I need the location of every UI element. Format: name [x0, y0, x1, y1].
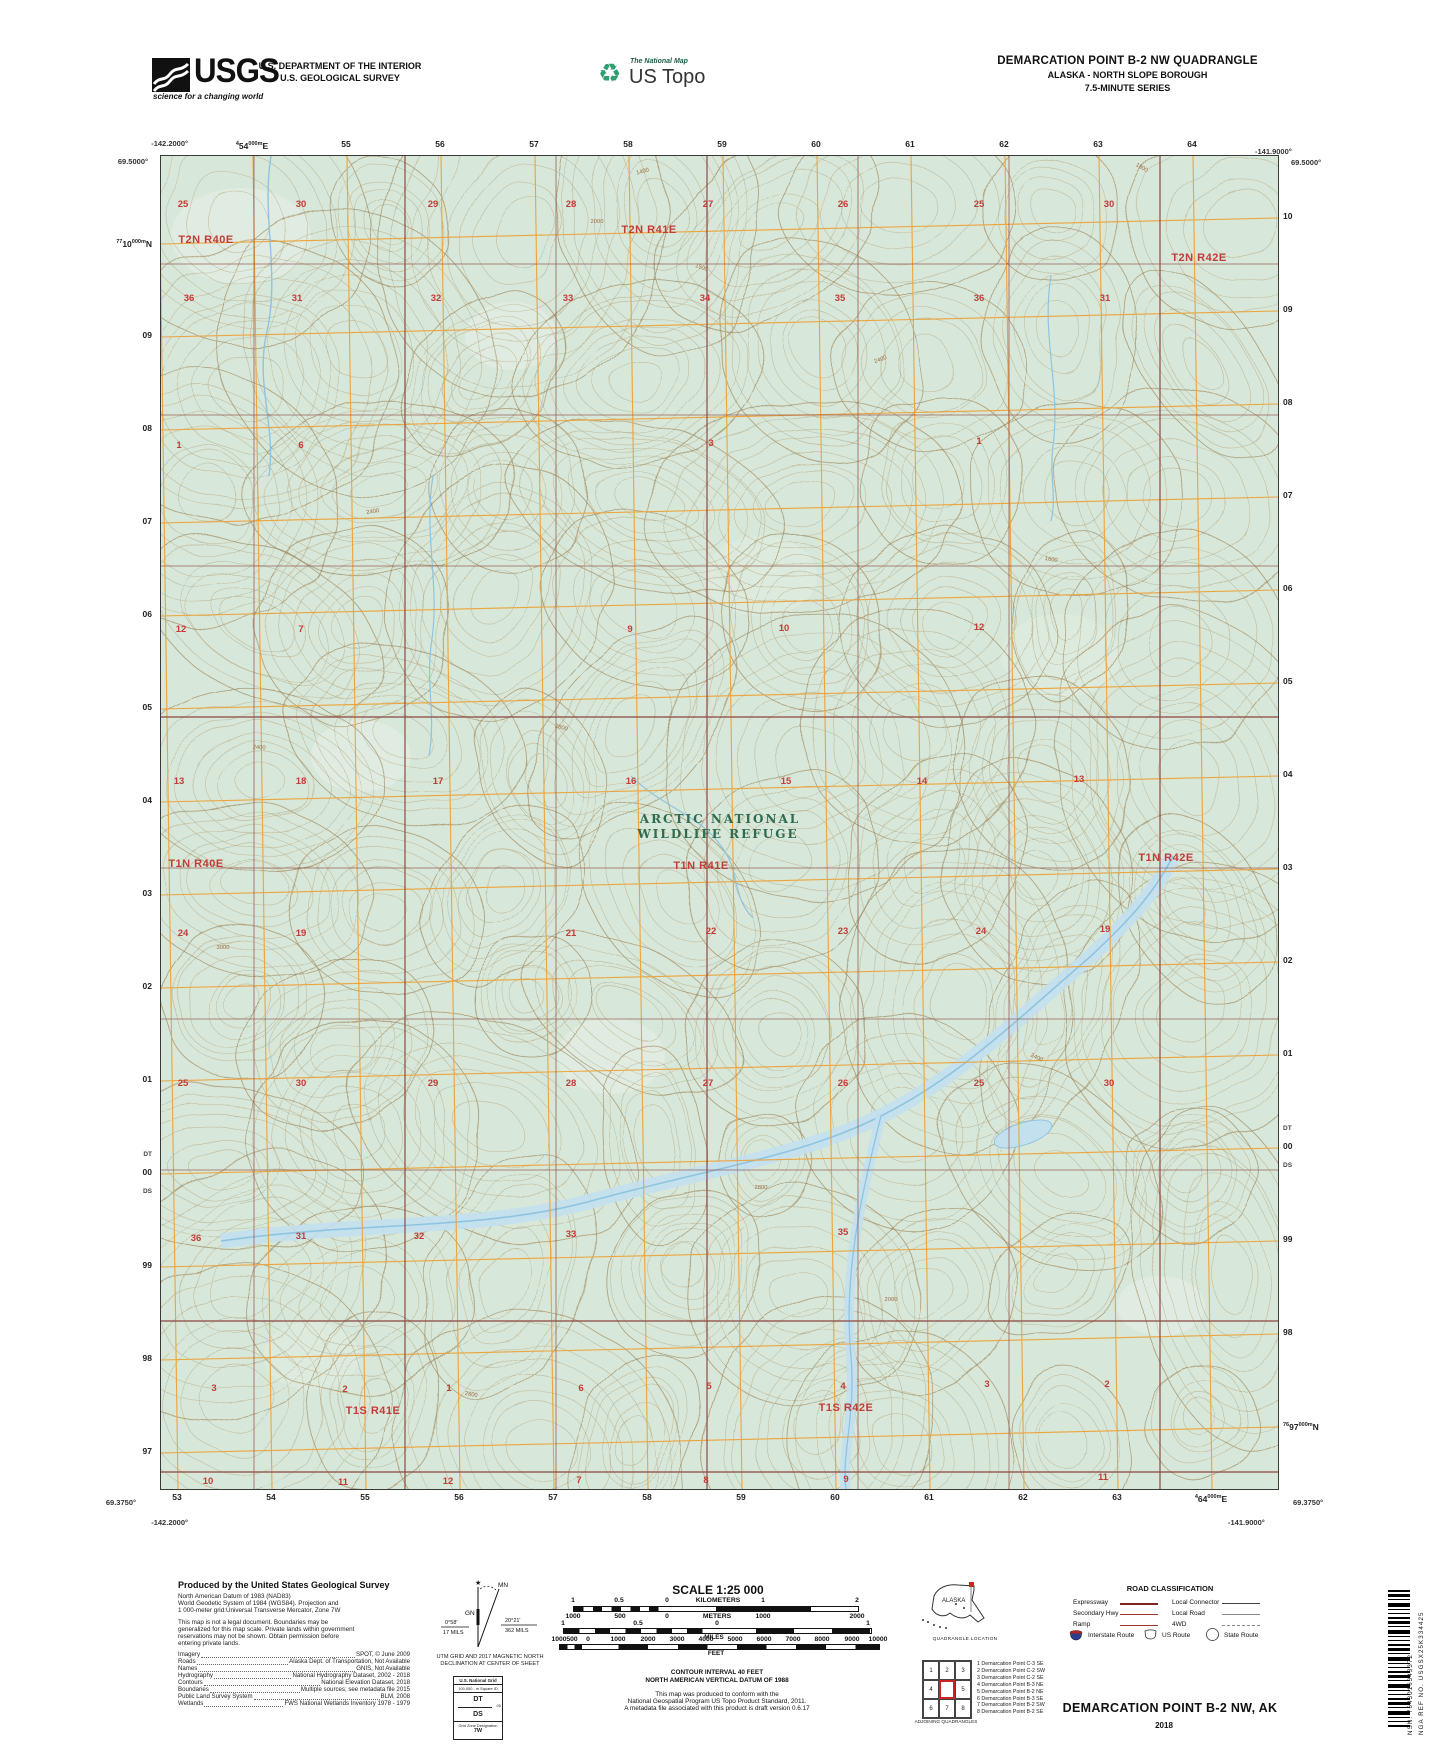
section-number: 28: [566, 199, 577, 210]
section-number: 30: [296, 1078, 307, 1089]
grid-easting-top: 59: [717, 140, 726, 149]
quad-name: DEMARCATION POINT B-2 NW QUADRANGLE: [960, 55, 1295, 67]
adjoining-quad-name: 4 Demarcation Point B-3 NE: [977, 1682, 1107, 1689]
legal-note: This map is not a legal document. Bounda…: [178, 1619, 410, 1648]
adjoining-quad-cell: 3: [955, 1661, 971, 1680]
declination-caption: UTM GRID AND 2017 MAGNETIC NORTH DECLINA…: [425, 1654, 555, 1667]
national-map-label: The National Map: [630, 58, 688, 65]
grid-northing-right: 10: [1283, 212, 1292, 221]
svg-text:362 MILS: 362 MILS: [505, 1628, 529, 1634]
section-number: 29: [428, 199, 439, 210]
usng-subtitle: 100,000 - m Square ID: [454, 1685, 502, 1693]
section-number: 3: [708, 438, 713, 449]
grid-easting-bottom: 63: [1112, 1493, 1121, 1502]
adjoining-quad-name: 1 Demarcation Point C-3 SE: [977, 1661, 1107, 1668]
contour-elevation-label: 2000: [885, 1297, 898, 1303]
adjoining-quads-caption: ADJOINING QUADRANGLES: [896, 1719, 996, 1724]
scale-label: KILOMETERS: [696, 1597, 741, 1604]
section-number: 6: [298, 440, 303, 451]
section-number: 25: [974, 199, 985, 210]
scale-label: 8000: [814, 1636, 829, 1643]
grid-easting-top: 58: [623, 140, 632, 149]
quad-series: 7.5-MINUTE SERIES: [960, 83, 1295, 93]
section-number: 11: [338, 1477, 349, 1488]
section-number: 5: [706, 1381, 712, 1392]
grid-northing-right: 04: [1283, 770, 1292, 779]
grid-easting-top: 62: [999, 140, 1008, 149]
scale-label: 4000: [698, 1636, 713, 1643]
grid-northing-left: DT: [84, 1150, 152, 1159]
section-number: 36: [184, 293, 195, 304]
section-number: 34: [700, 293, 711, 304]
section-number: 17: [433, 776, 444, 787]
grid-northing-right: 99: [1283, 1235, 1292, 1244]
credits-title: Produced by the United States Geological…: [178, 1580, 410, 1590]
section-number: 14: [917, 776, 928, 787]
grid-northing-right: 7697000mN: [1283, 1421, 1319, 1432]
usgs-tagline: science for a changing world: [153, 92, 263, 101]
adjoining-quad-cell: 5: [955, 1680, 971, 1699]
section-number: 12: [176, 624, 187, 635]
adjoining-quad-name: 3 Demarcation Point C-2 SE: [977, 1675, 1107, 1682]
grid-northing-right: 09: [1283, 305, 1292, 314]
interstate-shield-icon: [1068, 1628, 1084, 1642]
grid-easting-bottom: 60: [830, 1493, 839, 1502]
grid-easting-bottom: 58: [642, 1493, 651, 1502]
dept-line1: U.S. DEPARTMENT OF THE INTERIOR: [250, 60, 430, 72]
grid-northing-right: 05: [1283, 677, 1292, 686]
section-number: 35: [838, 1227, 849, 1238]
standard-note-2: National Geospatial Program US Topo Prod…: [628, 1698, 807, 1705]
section-number: 30: [1104, 199, 1115, 210]
road-class-line: [1222, 1625, 1260, 1626]
road-class-line: [1222, 1603, 1260, 1604]
grid-northing-right: 02: [1283, 956, 1292, 965]
section-number: 4: [840, 1381, 846, 1392]
scale-label: 2000: [849, 1613, 864, 1620]
usng-line-label: 00: [497, 1703, 501, 1708]
section-number: 1: [446, 1383, 452, 1394]
topo-map-sheet: USGS science for a changing world U.S. D…: [0, 0, 1445, 1746]
adjoining-quads-grid: 12345678: [922, 1660, 972, 1719]
grid-easting-bottom: 53: [172, 1493, 181, 1502]
dept-line2: U.S. GEOLOGICAL SURVEY: [250, 72, 430, 84]
scale-label: 0: [665, 1597, 669, 1604]
grid-easting-top: 63: [1093, 140, 1102, 149]
section-number: 3: [211, 1383, 216, 1394]
corner-bottom-right-lon: -141.9000°: [1228, 1518, 1265, 1527]
contour-elevation-label: 3000: [217, 945, 230, 951]
grid-northing-left: 97: [84, 1447, 152, 1456]
quad-location-caption: QUADRANGLE LOCATION: [905, 1637, 1025, 1642]
scale-label: 1000: [755, 1613, 770, 1620]
section-number: 2: [1104, 1379, 1109, 1390]
section-number: 7: [576, 1475, 581, 1486]
scale-label: 1000: [565, 1613, 580, 1620]
grid-northing-right: 03: [1283, 863, 1292, 872]
km-scale-bar: [573, 1606, 859, 1612]
grid-easting-bottom: 55: [360, 1493, 369, 1502]
quad-location-marker: [969, 1582, 974, 1587]
section-number: 33: [566, 1229, 577, 1240]
grid-easting-bottom: 59: [736, 1493, 745, 1502]
grid-easting-top: 57: [529, 140, 538, 149]
section-number: 27: [703, 1078, 714, 1089]
usng-gzd-label: Grid Zone Designation: [454, 1721, 502, 1728]
section-number: 16: [626, 776, 637, 787]
section-number: 22: [706, 926, 717, 937]
road-class-line: [1222, 1614, 1260, 1615]
scale-label: 500: [566, 1636, 577, 1643]
section-number: 25: [178, 1078, 189, 1089]
road-class-line: [1120, 1625, 1158, 1626]
corner-bottom-right-lat: 69.3750°: [1293, 1498, 1323, 1507]
section-number: 19: [1100, 924, 1111, 935]
section-number: 1: [976, 436, 982, 447]
section-number: 27: [703, 199, 714, 210]
adjoining-quad-name: 2 Demarcation Point C-2 SW: [977, 1668, 1107, 1675]
adjoining-quad-cell: 1: [923, 1661, 939, 1680]
grid-easting-top: 55: [341, 140, 350, 149]
standard-note-3: A metadata file associated with this pro…: [624, 1705, 809, 1712]
scale-label: 500: [614, 1613, 625, 1620]
township-label: T1N R40E: [168, 858, 223, 870]
corner-bottom-left-lat: 69.3750°: [84, 1498, 136, 1507]
state-location-inset: ALASKA: [920, 1578, 1010, 1644]
grid-easting-top: 64: [1187, 140, 1196, 149]
road-class-label: Expressway: [1073, 1599, 1108, 1606]
state-route-circle-icon: [1205, 1627, 1220, 1642]
grid-northing-right: DS: [1283, 1161, 1292, 1170]
us-route-label: US Route: [1162, 1632, 1190, 1639]
section-number: 1: [176, 440, 182, 451]
adjoining-quad-cell: 4: [923, 1680, 939, 1699]
township-label: T2N R40E: [178, 234, 233, 246]
section-number: 8: [703, 1475, 708, 1486]
grid-northing-left: 09: [84, 331, 152, 340]
grid-northing-right: 08: [1283, 398, 1292, 407]
usng-square-ds: DS: [454, 1711, 502, 1721]
section-number: 9: [843, 1474, 848, 1485]
data-sources-list: ImagerySPOT, © June 2009RoadsAlaska Dept…: [178, 1652, 410, 1707]
township-label: T1S R41E: [346, 1405, 401, 1417]
section-number: 31: [292, 293, 303, 304]
grid-northing-left: 06: [84, 610, 152, 619]
svg-text:20°21': 20°21': [505, 1618, 521, 1624]
grid-easting-top: 60: [811, 140, 820, 149]
section-number: 10: [779, 623, 790, 634]
township-label: T2N R41E: [621, 224, 676, 236]
scale-label: 2: [855, 1597, 859, 1604]
department-heading: U.S. DEPARTMENT OF THE INTERIOR U.S. GEO…: [250, 60, 430, 84]
section-number: 28: [566, 1078, 577, 1089]
adjoining-quad-cell: 8: [955, 1699, 971, 1718]
scale-label: METERS: [703, 1613, 731, 1620]
standard-note-1: This map was produced to conform with th…: [655, 1691, 779, 1698]
refuge-name-line1: ARCTIC NATIONAL: [639, 812, 800, 826]
grid-northing-left: 05: [84, 703, 152, 712]
section-number: 13: [174, 776, 185, 787]
quadrangle-title: DEMARCATION POINT B-2 NW QUADRANGLE ALAS…: [960, 55, 1295, 93]
grid-easting-top: 61: [905, 140, 914, 149]
ustopo-label: US Topo: [629, 66, 705, 89]
road-class-label: Secondary Hwy: [1073, 1610, 1119, 1617]
grid-northing-left: 04: [84, 796, 152, 805]
grid-northing-left: 02: [84, 982, 152, 991]
road-class-line: [1120, 1603, 1158, 1605]
grid-easting-bottom: 56: [454, 1493, 463, 1502]
production-credits: Produced by the United States Geological…: [178, 1580, 410, 1708]
us-route-shield-icon: [1143, 1628, 1158, 1642]
vertical-datum-note: NORTH AMERICAN VERTICAL DATUM OF 1988: [645, 1677, 788, 1684]
scale-label: 0.5: [614, 1597, 623, 1604]
svg-text:17 MILS: 17 MILS: [443, 1630, 464, 1636]
section-number: 10: [203, 1476, 214, 1487]
scale-label: 1: [761, 1597, 765, 1604]
adjoining-quad-name: 5 Demarcation Point B-2 NE: [977, 1689, 1107, 1696]
nga-ref-number: NGA REF NO. USGSX25K334425: [1418, 1611, 1425, 1735]
grid-northing-left: 03: [84, 889, 152, 898]
grid-northing-right: 07: [1283, 491, 1292, 500]
grid-northing-right: DT: [1283, 1124, 1292, 1133]
grid-northing-right: 01: [1283, 1049, 1292, 1058]
scale-title: SCALE 1:25 000: [600, 1583, 836, 1597]
corner-bottom-left-lon: -142.2000°: [128, 1518, 188, 1527]
feet-word: FEET: [708, 1650, 724, 1657]
contour-elevation-label: 2000: [591, 219, 604, 225]
scale-label: 0: [665, 1613, 669, 1620]
adjoining-quad-cell: [939, 1680, 955, 1699]
usng-square-dt: DT: [454, 1693, 502, 1703]
section-number: 29: [428, 1078, 439, 1089]
svg-text:GN: GN: [465, 1610, 475, 1617]
township-label: T1N R41E: [673, 860, 728, 872]
road-class-label: Ramp: [1073, 1621, 1090, 1628]
section-number: 31: [1100, 293, 1111, 304]
road-classification-title: ROAD CLASSIFICATION: [1080, 1584, 1260, 1593]
section-number: 24: [976, 926, 987, 937]
datum-note: North American Datum of 1983 (NAD83)Worl…: [178, 1593, 410, 1615]
scale-label: 7000: [785, 1636, 800, 1643]
grid-northing-left: 07: [84, 517, 152, 526]
contour-interval-note: CONTOUR INTERVAL 40 FEET: [671, 1669, 763, 1676]
corner-top-right-lat: 69.5000°: [1291, 158, 1321, 167]
section-number: 13: [1074, 774, 1085, 785]
scale-label: 9000: [844, 1636, 859, 1643]
grid-easting-bottom: 61: [924, 1493, 933, 1502]
grid-northing-left: DS: [84, 1187, 152, 1196]
sheet-name: DEMARCATION POINT B-2 NW, AK: [1040, 1701, 1300, 1715]
ustopo-logo: ♻ The National Map US Topo: [598, 58, 718, 98]
section-number: 2: [342, 1384, 347, 1395]
adjoining-quad-cell: 7: [939, 1699, 955, 1718]
grid-easting-bottom: 54: [266, 1493, 275, 1502]
section-number: 36: [191, 1233, 202, 1244]
nsn-number: NSN. 7643016343372: [1407, 1654, 1414, 1735]
road-class-line: [1120, 1614, 1158, 1615]
scale-label: 1: [571, 1597, 575, 1604]
township-label: T1S R42E: [819, 1402, 874, 1414]
corner-top-left-lon: -142.2000°: [128, 139, 188, 148]
scale-label: 2000: [640, 1636, 655, 1643]
section-number: 30: [296, 199, 307, 210]
adjoining-quad-cell: 2: [939, 1661, 955, 1680]
grid-northing-left: 08: [84, 424, 152, 433]
section-number: 15: [781, 776, 792, 787]
grid-northing-left: 98: [84, 1354, 152, 1363]
road-class-label: Local Road: [1172, 1610, 1205, 1617]
section-number: 25: [178, 199, 189, 210]
data-source-row: WetlandsFWS National Wetlands Inventory …: [178, 1701, 410, 1708]
section-number: 26: [838, 1078, 849, 1089]
township-label: T2N R42E: [1171, 252, 1226, 264]
refuge-name-line2: WILDLIFE REFUGE: [636, 827, 798, 841]
section-number: 35: [835, 293, 846, 304]
section-number: 3: [984, 1379, 989, 1390]
section-number: 33: [563, 293, 574, 304]
section-number: 12: [974, 622, 985, 633]
adjoining-quad-cell: 6: [923, 1699, 939, 1718]
section-number: 36: [974, 293, 985, 304]
scale-label: 0: [715, 1620, 719, 1627]
national-map-icon: ♻: [598, 60, 621, 86]
scale-label: 1000: [610, 1636, 625, 1643]
grid-easting-bottom: 57: [548, 1493, 557, 1502]
section-number: 32: [414, 1231, 425, 1242]
scale-label: 0.5: [633, 1620, 642, 1627]
section-number: 30: [1104, 1078, 1115, 1089]
township-label: T1N R42E: [1138, 852, 1193, 864]
quad-state: ALASKA - NORTH SLOPE BOROUGH: [960, 70, 1295, 80]
usng-box: U.S. National Grid 100,000 - m Square ID…: [453, 1676, 503, 1740]
section-number: 18: [296, 776, 307, 787]
usng-gzd: 7W: [454, 1728, 502, 1735]
grid-northing-right: 06: [1283, 584, 1292, 593]
section-number: 26: [838, 199, 849, 210]
grid-easting-bottom: 464000mE: [1195, 1493, 1227, 1504]
grid-northing-left: 7710000mN: [84, 238, 152, 249]
section-number: 11: [1098, 1472, 1109, 1483]
map-area: 2530292827262530363132333435363116311279…: [160, 155, 1279, 1490]
interstate-route-label: Interstate Route: [1088, 1632, 1134, 1639]
usgs-wave-icon: [152, 58, 190, 92]
grid-northing-right: 00: [1283, 1142, 1292, 1151]
section-number: 19: [296, 928, 307, 939]
grid-easting-top: 56: [435, 140, 444, 149]
section-number: 12: [443, 1476, 454, 1487]
section-number: 21: [566, 928, 577, 939]
section-number: 25: [974, 1078, 985, 1089]
contour-elevation-label: 2800: [755, 1185, 768, 1191]
grid-northing-left: 99: [84, 1261, 152, 1270]
scale-label: 1: [866, 1620, 870, 1627]
corner-top-left-lat: 69.5000°: [96, 157, 148, 166]
scale-label: 10000: [869, 1636, 888, 1643]
section-number: 24: [178, 928, 189, 939]
section-number: 6: [578, 1383, 583, 1394]
grid-easting-bottom: 62: [1018, 1493, 1027, 1502]
section-number: 7: [298, 624, 303, 635]
scale-label: 5000: [727, 1636, 742, 1643]
grid-easting-top: 454000mE: [236, 140, 268, 151]
section-number: 32: [431, 293, 442, 304]
road-class-label: 4WD: [1172, 1621, 1186, 1628]
sheet-year: 2018: [1040, 1721, 1288, 1730]
svg-text:0°58': 0°58': [445, 1620, 457, 1626]
grid-northing-left: 01: [84, 1075, 152, 1084]
state-route-label: State Route: [1224, 1632, 1258, 1639]
svg-text:MN: MN: [498, 1582, 508, 1589]
true-north-star: ★: [475, 1579, 481, 1587]
contour-elevation-label: 2400: [252, 744, 265, 751]
scale-label: 1: [561, 1620, 565, 1627]
usng-title: U.S. National Grid: [454, 1677, 502, 1685]
grid-northing-left: 00: [84, 1168, 152, 1177]
grid-northing-right: 98: [1283, 1328, 1292, 1337]
section-number: 31: [296, 1231, 307, 1242]
alaska-label: ALASKA: [942, 1598, 965, 1604]
scale-label: 6000: [756, 1636, 771, 1643]
scale-label: 0: [586, 1636, 590, 1643]
road-class-label: Local Connector: [1172, 1599, 1219, 1606]
section-number: 9: [627, 624, 632, 635]
section-number: 23: [838, 926, 849, 937]
scale-label: 1000: [551, 1636, 566, 1643]
scale-label: 3000: [669, 1636, 684, 1643]
